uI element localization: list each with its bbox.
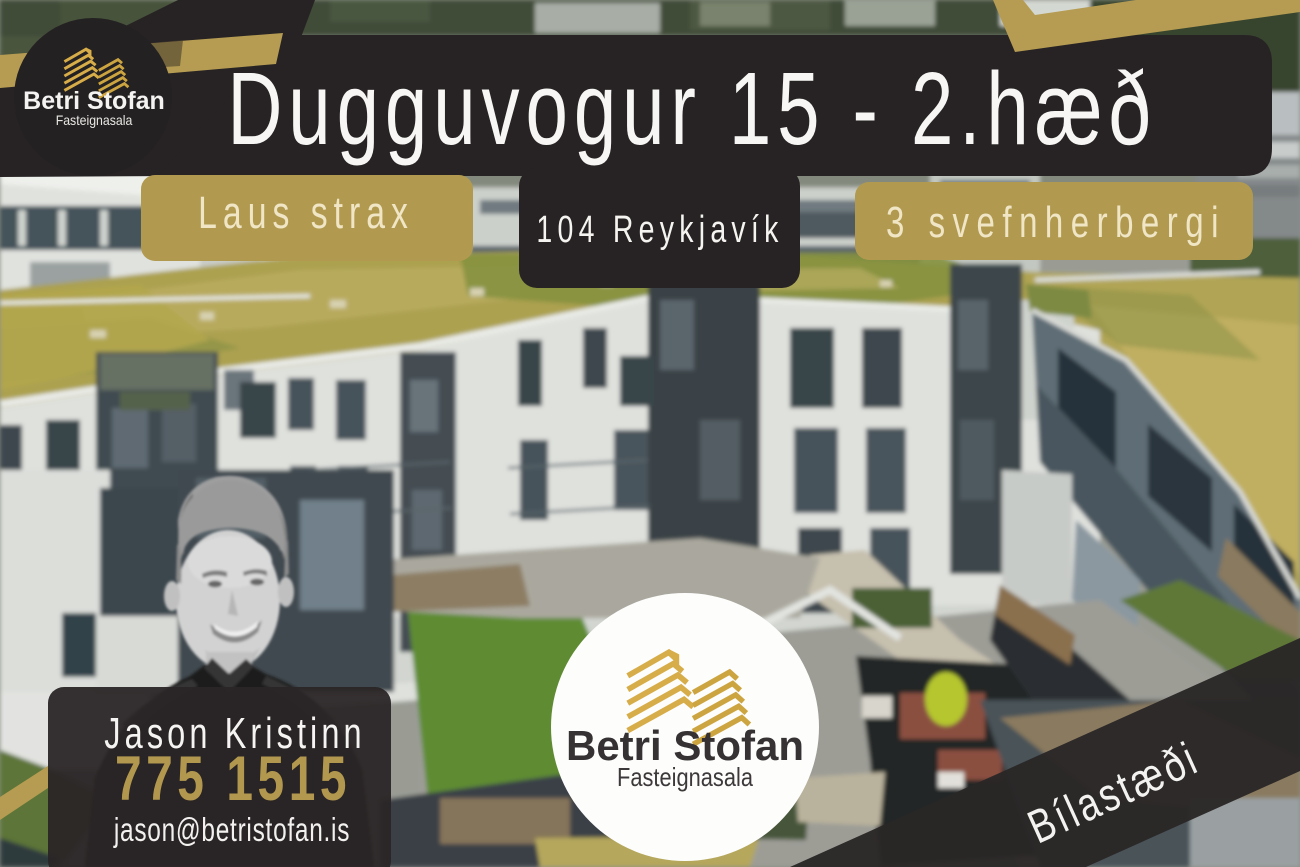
- svg-text:775 1515: 775 1515: [115, 743, 351, 814]
- svg-text:Fasteignasala: Fasteignasala: [56, 112, 133, 128]
- svg-text:Fasteignasala: Fasteignasala: [617, 763, 754, 792]
- svg-text:Laus strax: Laus strax: [198, 188, 414, 238]
- svg-text:Betri Stofan: Betri Stofan: [23, 87, 165, 115]
- svg-text:104 Reykjavík: 104 Reykjavík: [536, 209, 783, 251]
- svg-text:Dugguvogur 15 - 2.hæð: Dugguvogur 15 - 2.hæð: [227, 52, 1156, 167]
- svg-text:Betri Stofan: Betri Stofan: [566, 722, 804, 769]
- svg-text:jason@betristofan.is: jason@betristofan.is: [113, 813, 350, 849]
- svg-text:3 svefnherbergi: 3 svefnherbergi: [886, 199, 1226, 248]
